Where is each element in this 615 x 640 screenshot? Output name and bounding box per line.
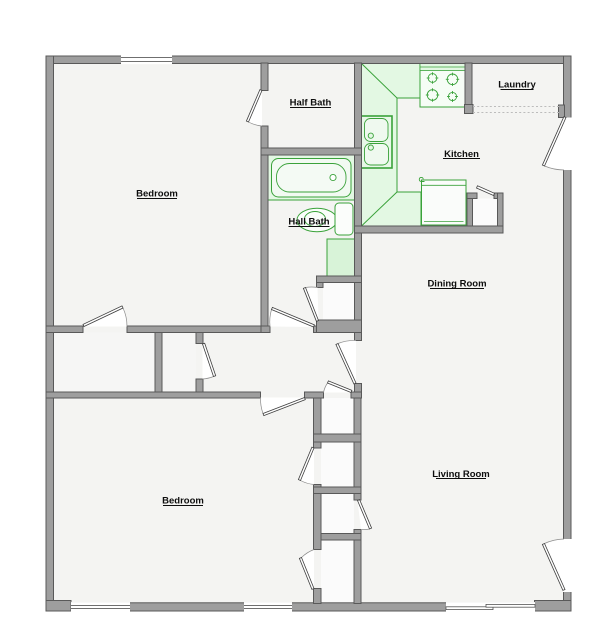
svg-text:Bedroom: Bedroom (162, 496, 204, 507)
svg-text:Hall Bath: Hall Bath (288, 217, 329, 228)
svg-text:Dining Room: Dining Room (427, 279, 486, 290)
svg-text:Bedroom: Bedroom (136, 189, 178, 200)
svg-text:Half Bath: Half Bath (290, 98, 332, 109)
svg-text:Laundry: Laundry (498, 80, 536, 91)
